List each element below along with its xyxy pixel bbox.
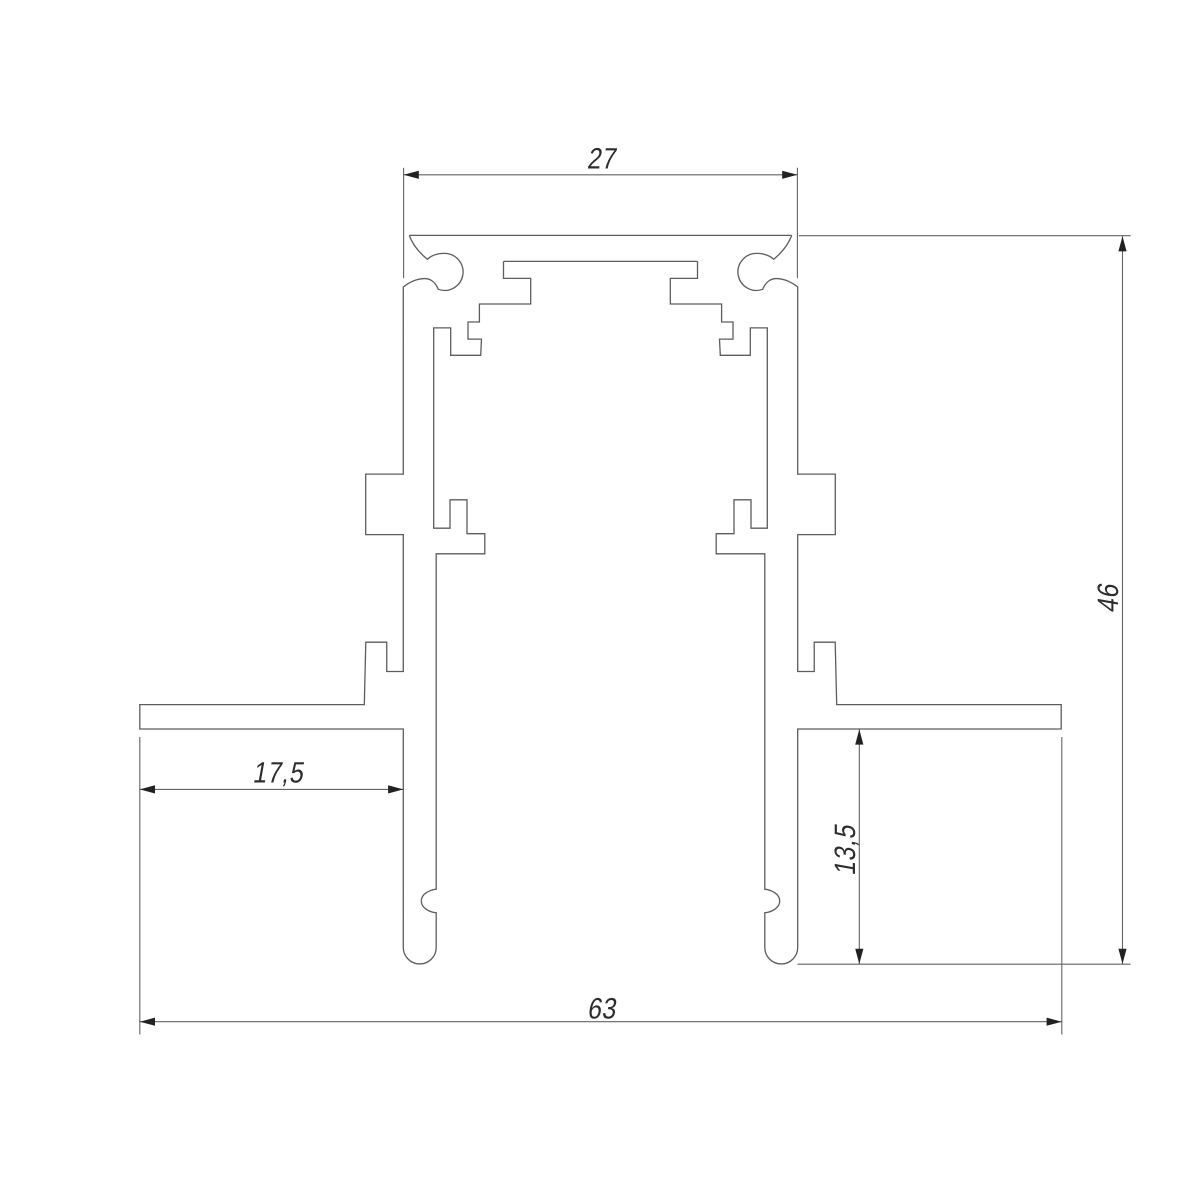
svg-text:17,5: 17,5 <box>251 756 308 789</box>
svg-text:27: 27 <box>585 142 620 175</box>
svg-text:63: 63 <box>586 992 621 1025</box>
svg-text:13,5: 13,5 <box>828 820 861 877</box>
svg-text:46: 46 <box>1091 580 1124 615</box>
